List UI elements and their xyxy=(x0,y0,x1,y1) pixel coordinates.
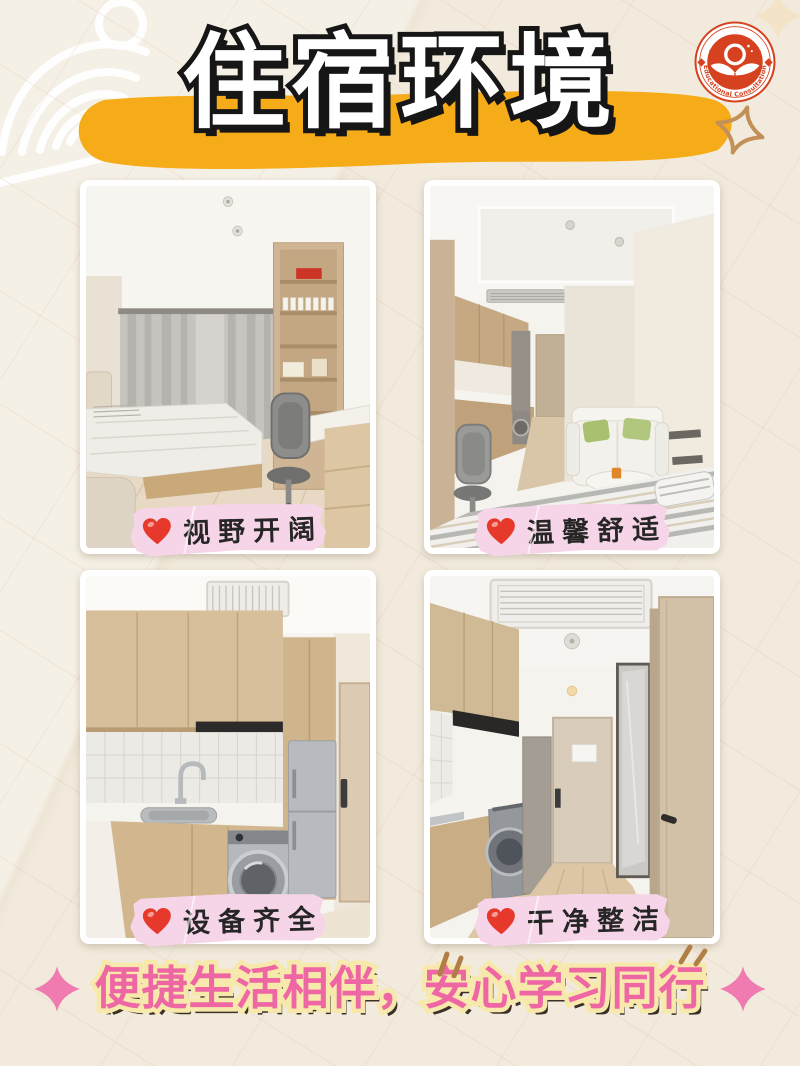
fridge xyxy=(289,741,336,898)
photo-card-hallway: 干净整洁 xyxy=(424,570,720,944)
page-title-text: 住宿环境 xyxy=(0,14,800,152)
heart-icon xyxy=(485,516,518,547)
caption-text: 设备齐全 xyxy=(182,897,323,940)
caption-tape: 设备齐全 xyxy=(129,891,326,947)
photo-card-kitchen: 设备齐全 xyxy=(80,570,376,944)
hallway-photo xyxy=(430,576,714,938)
caption-tape: 温馨舒适 xyxy=(473,501,670,557)
poster: 住宿环境 住宿环境 Educational Consultation xyxy=(0,0,800,1066)
caption-text: 视野开阔 xyxy=(182,507,323,550)
tick-marks-icon xyxy=(434,948,468,978)
heart-icon xyxy=(141,516,174,547)
upper-cabinets xyxy=(86,610,283,732)
heart-icon xyxy=(141,906,174,937)
photo-card-living-area: 温馨舒适 xyxy=(424,180,720,554)
photo-card-bedroom: 视野开阔 xyxy=(80,180,376,554)
near-door xyxy=(659,597,714,938)
sofa-arm xyxy=(86,478,135,548)
logo-badge: Educational Consultation xyxy=(693,20,777,104)
bedroom-photo xyxy=(86,186,370,548)
living-area-photo xyxy=(430,186,714,548)
tick-marks-icon xyxy=(676,942,710,968)
caption-tape: 视野开阔 xyxy=(129,501,326,557)
downlight xyxy=(567,686,576,696)
caption-text: 温馨舒适 xyxy=(526,507,667,550)
caption-tape: 干净整洁 xyxy=(473,891,670,947)
ceiling-vent xyxy=(491,580,652,628)
mirror xyxy=(617,664,649,877)
far-door xyxy=(553,718,612,864)
tall-unit xyxy=(523,737,551,894)
kitchen-photo xyxy=(86,576,370,938)
page-title: 住宿环境 住宿环境 xyxy=(0,14,800,164)
far-door xyxy=(536,335,564,417)
entry-door xyxy=(340,683,370,901)
heart-icon xyxy=(485,906,518,937)
sparkle-right-icon xyxy=(718,964,768,1014)
caption-text: 干净整洁 xyxy=(526,897,667,940)
